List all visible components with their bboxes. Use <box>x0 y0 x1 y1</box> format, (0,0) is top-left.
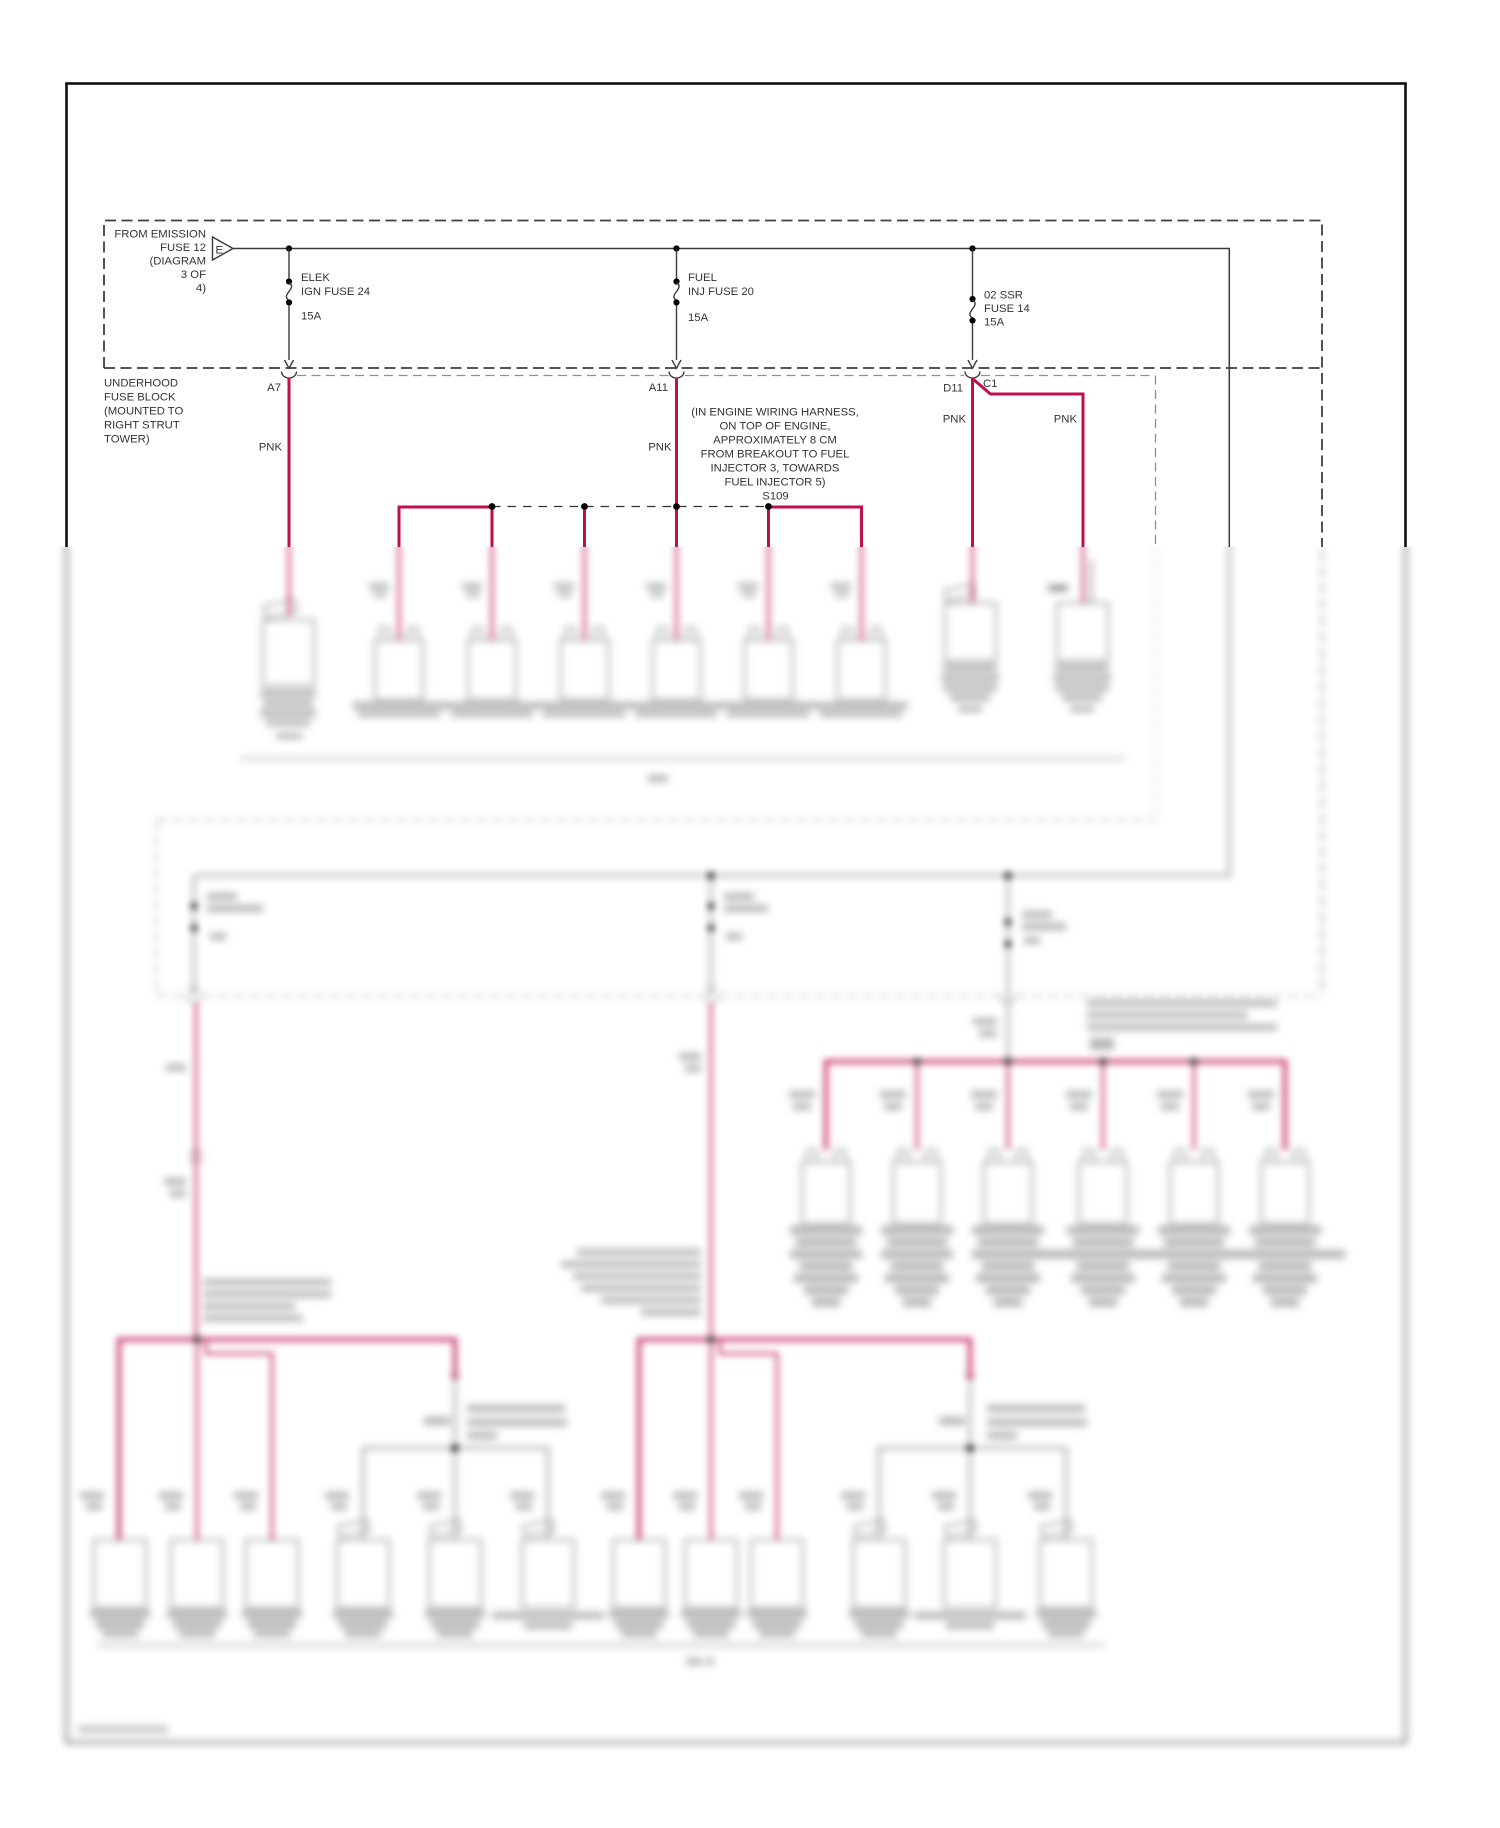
svg-text:15A: 15A <box>301 311 322 323</box>
svg-text:FUSE 12: FUSE 12 <box>160 242 206 254</box>
svg-text:FROM BREAKOUT TO FUEL: FROM BREAKOUT TO FUEL <box>701 449 850 461</box>
svg-text:(DIAGRAM: (DIAGRAM <box>150 256 207 268</box>
svg-text:IGN FUSE 24: IGN FUSE 24 <box>301 286 370 298</box>
svg-text:FUEL: FUEL <box>688 272 717 284</box>
svg-text:PNK: PNK <box>1054 414 1078 426</box>
svg-text:FUEL INJECTOR 5): FUEL INJECTOR 5) <box>724 477 825 489</box>
svg-text:02 SSR: 02 SSR <box>984 290 1023 302</box>
svg-text:ELEK: ELEK <box>301 272 330 284</box>
svg-text:TOWER): TOWER) <box>104 434 150 446</box>
svg-text:FUSE 14: FUSE 14 <box>984 303 1030 315</box>
svg-text:ON TOP OF ENGINE,: ON TOP OF ENGINE, <box>719 421 830 433</box>
svg-text:FUSE BLOCK: FUSE BLOCK <box>104 392 176 404</box>
svg-text:A7: A7 <box>267 382 281 394</box>
svg-text:UNDERHOOD: UNDERHOOD <box>104 378 178 390</box>
svg-text:E: E <box>216 245 224 257</box>
svg-text:RIGHT STRUT: RIGHT STRUT <box>104 420 180 432</box>
svg-text:A11: A11 <box>649 382 668 394</box>
svg-text:(MOUNTED TO: (MOUNTED TO <box>104 406 184 418</box>
svg-text:APPROXIMATELY 8 CM: APPROXIMATELY 8 CM <box>713 435 837 447</box>
svg-text:PNK: PNK <box>259 442 283 454</box>
svg-text:S109: S109 <box>762 491 788 503</box>
svg-text:INJECTOR 3, TOWARDS: INJECTOR 3, TOWARDS <box>711 463 840 475</box>
svg-text:3 OF: 3 OF <box>181 269 206 281</box>
svg-text:(IN ENGINE WIRING HARNESS,: (IN ENGINE WIRING HARNESS, <box>691 407 859 419</box>
svg-text:D11: D11 <box>943 383 963 395</box>
svg-text:FROM EMISSION: FROM EMISSION <box>114 229 206 241</box>
svg-text:4): 4) <box>196 283 206 295</box>
svg-text:15A: 15A <box>688 312 709 324</box>
svg-text:PNK: PNK <box>648 442 672 454</box>
svg-text:15A: 15A <box>984 317 1005 329</box>
svg-text:INJ FUSE 20: INJ FUSE 20 <box>688 286 754 298</box>
svg-text:PNK: PNK <box>943 414 967 426</box>
